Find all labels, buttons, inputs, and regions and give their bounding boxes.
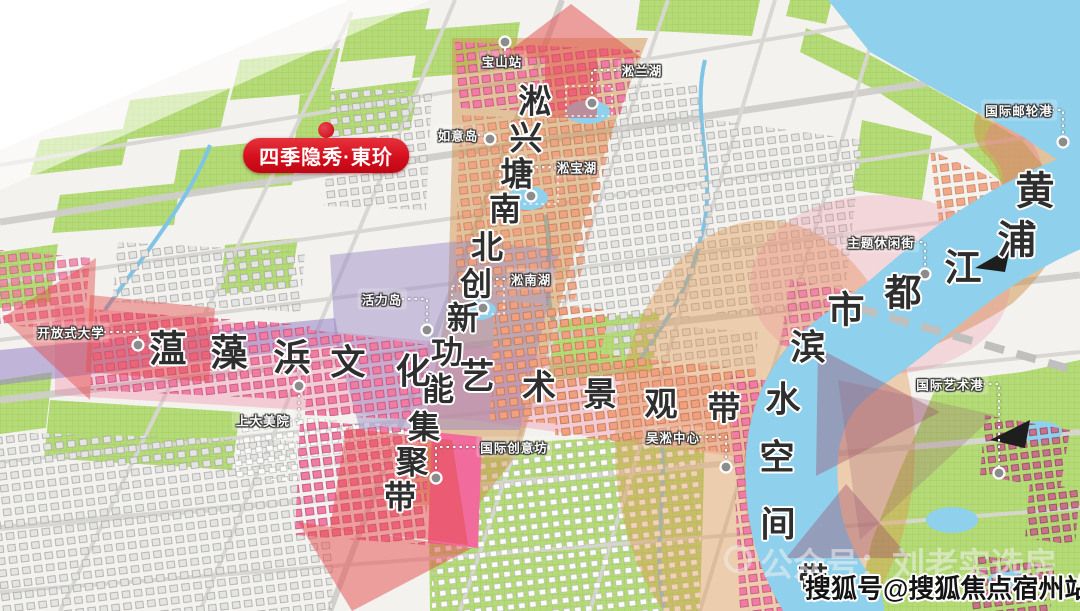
project-name-pill[interactable]: 四季隐秀·東玠 (243, 138, 409, 173)
poi-dot (587, 98, 598, 109)
project-location-dot (318, 122, 334, 138)
watermark-bold-text: 搜狐号@搜狐焦点宿州站 (805, 569, 1080, 606)
poi-dot (294, 381, 305, 392)
poi-dot (526, 191, 537, 202)
poi-dot (478, 303, 489, 314)
poi-dot (422, 325, 433, 336)
poi-dot (1058, 137, 1069, 148)
project-marker[interactable]: 四季隐秀·東玠 (243, 138, 409, 173)
planning-map: 淞兴塘南北创新功能集聚带蕰藻浜文化艺术景观带黄浦江都市滨水空间带 宝山站淞兰湖如… (0, 0, 1080, 611)
poi-dot (994, 468, 1005, 479)
poi-dot (431, 473, 442, 484)
poi-dot (500, 37, 511, 48)
map-canvas (0, 0, 1080, 611)
poi-dot (133, 340, 144, 351)
watermark-logo-ring (724, 545, 752, 573)
poi-dot (485, 134, 496, 145)
poi-dot (721, 462, 732, 473)
poi-dot (920, 269, 931, 280)
